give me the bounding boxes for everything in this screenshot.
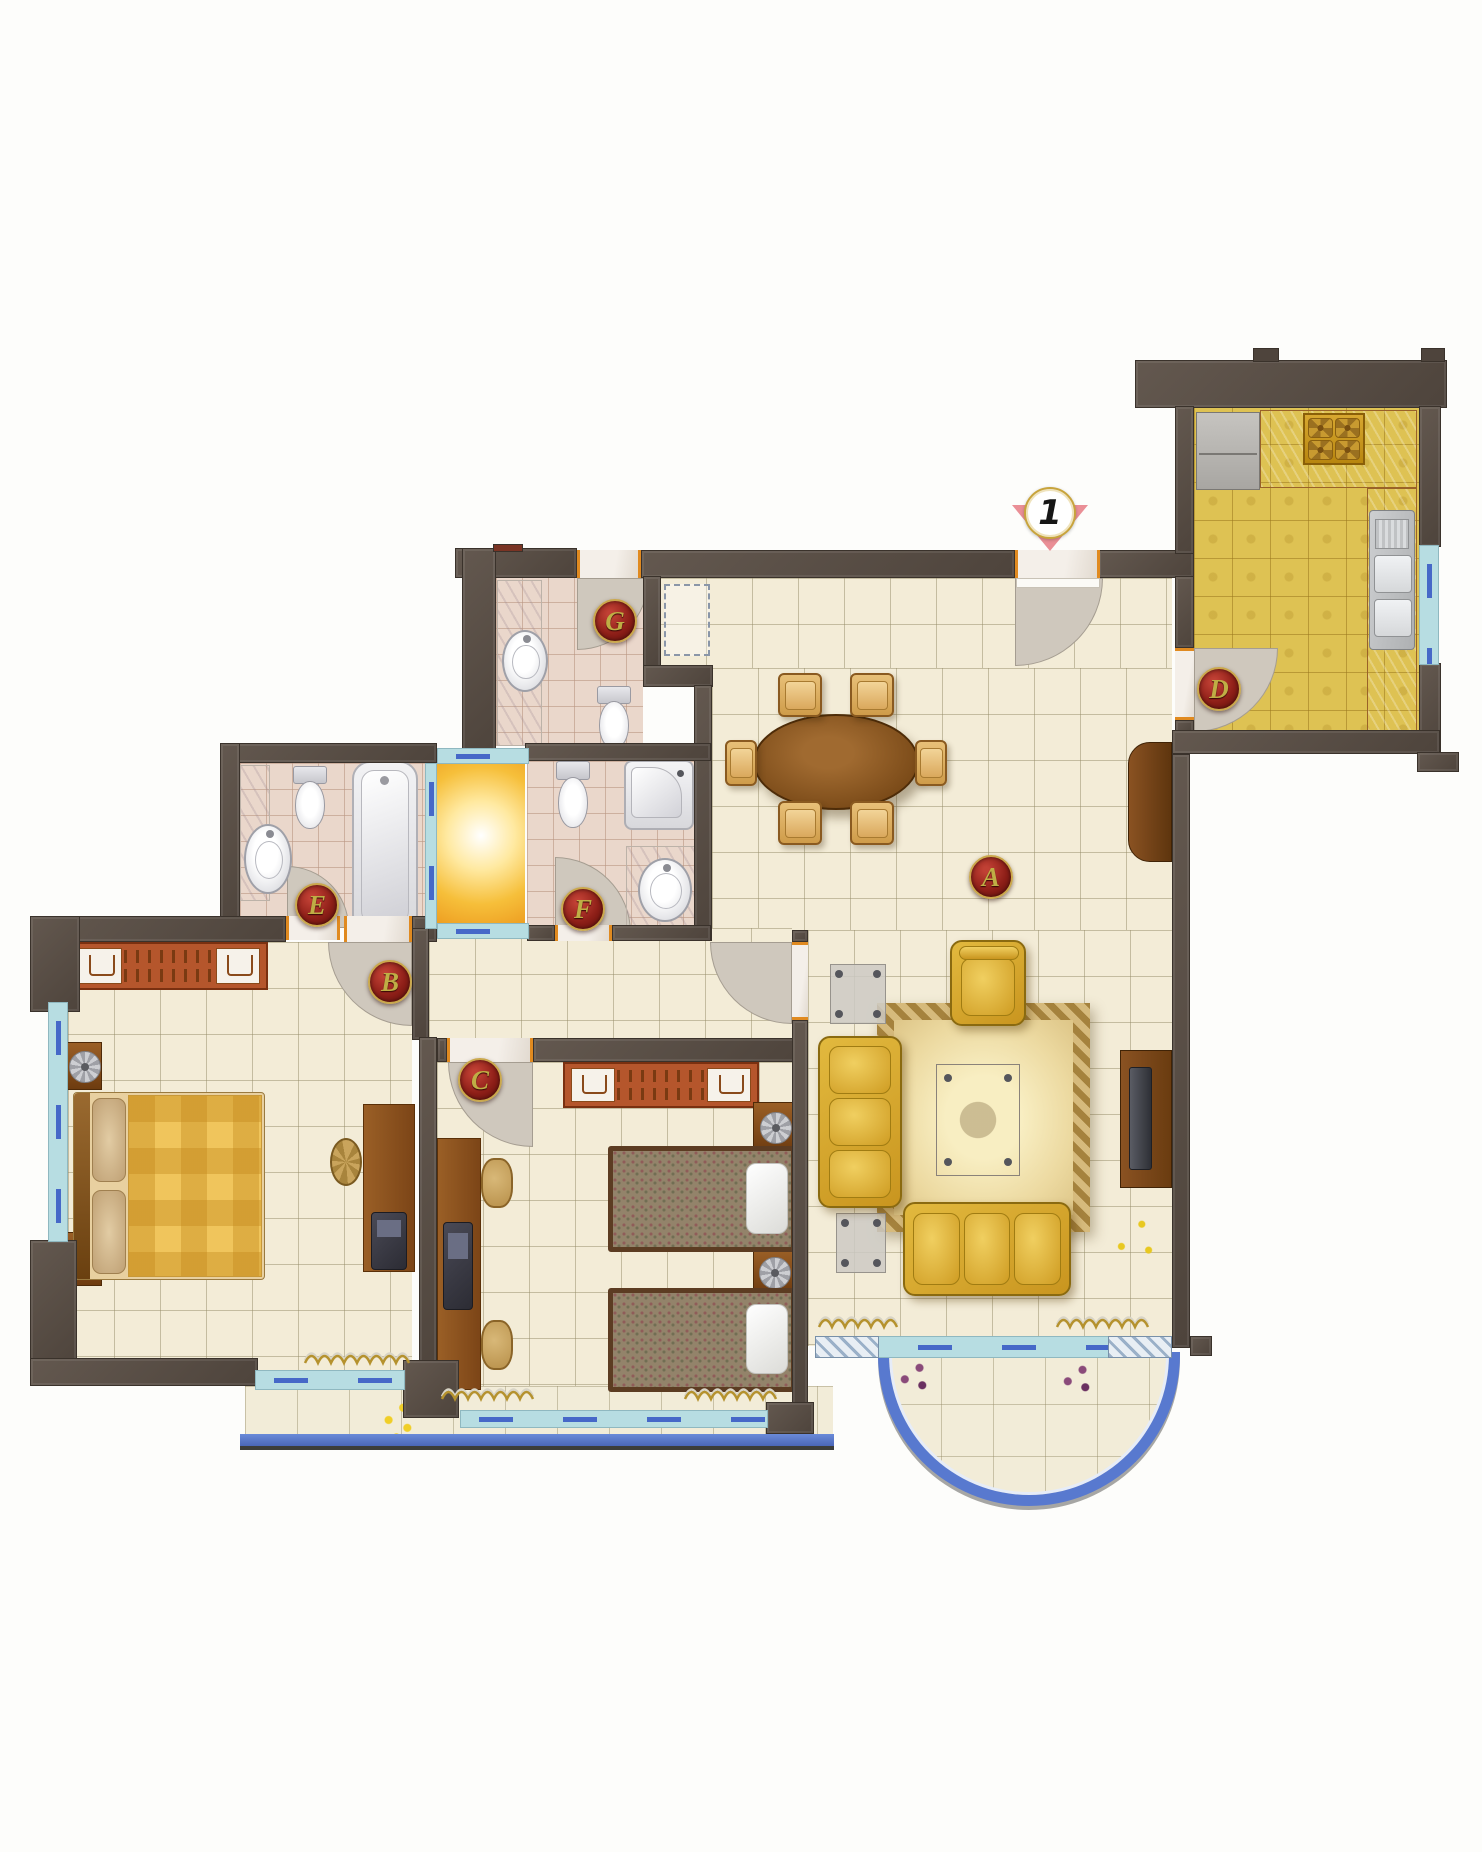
kitchen-sink — [1369, 510, 1415, 650]
bedroom2-chair-bottom — [481, 1320, 513, 1370]
foyer-closet-outline — [664, 584, 710, 656]
bath-g-basin — [502, 630, 548, 692]
wall-9 — [220, 743, 437, 763]
bedroom-master-balcony-window — [255, 1370, 405, 1390]
bedroom2-bed-top — [608, 1146, 796, 1252]
dining-chair-3 — [778, 801, 822, 845]
label-bath-e-E: E — [295, 883, 339, 927]
wall-6 — [643, 665, 713, 687]
living-sofa-left — [818, 1036, 902, 1208]
kitchen-wall-stub-1 — [1253, 348, 1279, 362]
living-window-sill-right — [1108, 1336, 1172, 1358]
wall-33 — [1172, 730, 1440, 754]
label-kitchen-D: D — [1197, 667, 1241, 711]
roof-cap-red — [493, 544, 523, 552]
living-armchair — [950, 940, 1026, 1026]
wall-16 — [412, 928, 429, 1040]
wall-24 — [30, 1358, 258, 1386]
bath-f-basin — [638, 858, 692, 922]
label-bedroom-master-B: B — [368, 960, 412, 1004]
living-sofa-front — [903, 1202, 1071, 1296]
label-bath-g-G: G — [593, 599, 637, 643]
dining-sideboard — [1128, 742, 1172, 862]
living-side-table-top — [830, 964, 886, 1024]
wall-20 — [792, 930, 808, 942]
bedroom2-desk-items — [443, 1222, 473, 1310]
bedroom-2-threshold — [447, 1038, 533, 1062]
wall-36 — [1190, 1336, 1212, 1356]
living-side-table-bottom — [836, 1213, 886, 1273]
bath-e-basin — [244, 824, 292, 894]
entrance-marker: 1 — [1024, 487, 1076, 539]
wall-34 — [1417, 752, 1459, 772]
bedroom2-nightstand-top — [753, 1102, 797, 1152]
lightwell-window-bottom — [437, 923, 529, 939]
kitchen-fridge — [1196, 412, 1260, 490]
bedroom2-wardrobe — [563, 1062, 759, 1108]
wall-12 — [527, 925, 555, 941]
kitchen-wall-stub-2 — [1421, 348, 1445, 362]
bedroom-master-side-window — [48, 1002, 68, 1242]
wall-10 — [220, 743, 240, 939]
entrance-marker-number: 1 — [1038, 493, 1062, 533]
label-bedroom-2-C: C — [458, 1058, 502, 1102]
bedroom-2-balcony-window — [460, 1410, 768, 1428]
plant-purple-right — [1054, 1356, 1100, 1402]
label-bath-f-F: F — [561, 887, 605, 931]
dining-chair-2 — [850, 673, 894, 717]
wall-7 — [694, 685, 712, 941]
master-desk-chair — [371, 1212, 407, 1270]
entrance-door-leaf — [1016, 578, 1100, 588]
wall-4 — [462, 548, 496, 754]
master-bed — [73, 1092, 265, 1280]
dining-chair-5 — [725, 740, 757, 786]
dining-chair-4 — [850, 801, 894, 845]
master-desk-stool — [330, 1138, 362, 1186]
curtain-bedroom2-left — [440, 1388, 540, 1404]
wall-13 — [612, 925, 711, 941]
curtain-master — [303, 1352, 411, 1368]
curtain-bedroom2-right — [683, 1388, 790, 1404]
floor-plan: 1 ABCDEFG — [0, 0, 1482, 1852]
lightwell-window-top — [437, 748, 529, 764]
curtain-living-right — [1055, 1316, 1162, 1332]
wall-23 — [30, 1240, 77, 1368]
curtain-living-left — [817, 1316, 899, 1332]
living-coffee-table — [936, 1064, 1020, 1176]
plant-purple-left — [891, 1354, 937, 1400]
entrance-threshold — [1015, 550, 1100, 578]
dining-chair-6 — [915, 740, 947, 786]
living-tv-cabinet — [1120, 1050, 1172, 1188]
wall-27 — [1135, 360, 1447, 408]
wall-3 — [1098, 550, 1194, 578]
dining-chair-1 — [778, 673, 822, 717]
bedroom2-chair-top — [481, 1158, 513, 1208]
balcony-left-edge — [240, 1434, 834, 1450]
wall-8 — [525, 743, 711, 761]
wall-2 — [641, 550, 1015, 578]
bedroom-master-threshold — [344, 916, 412, 942]
wall-18 — [437, 1038, 447, 1062]
bedroom2-bed-bottom — [608, 1288, 796, 1392]
kitchen-threshold — [1175, 648, 1194, 720]
label-living-dining-A: A — [969, 855, 1013, 899]
kitchen-window — [1419, 545, 1439, 665]
bath-f-toilet — [553, 761, 591, 827]
wall-29 — [1175, 576, 1194, 648]
bath-g-threshold — [577, 550, 641, 578]
wall-28 — [1175, 406, 1194, 554]
master-nightstand-top — [66, 1042, 102, 1090]
wall-19 — [533, 1038, 802, 1062]
living-window-sill-left — [815, 1336, 879, 1358]
wall-22 — [30, 916, 80, 1012]
living-hall-threshold — [792, 942, 808, 1020]
bath-f-shower — [624, 760, 694, 830]
dining-table — [753, 714, 919, 810]
plant-green — [1101, 1202, 1169, 1276]
kitchen-stove — [1303, 413, 1365, 465]
wall-21 — [792, 1020, 808, 1434]
bath-g-toilet — [594, 686, 632, 748]
bath-e-tub — [352, 761, 418, 933]
wall-5 — [643, 576, 661, 671]
wall-31 — [1419, 406, 1441, 547]
wall-26 — [766, 1402, 814, 1434]
lightwell-window-left — [425, 763, 437, 929]
lightwell — [437, 764, 525, 923]
wall-35 — [1172, 754, 1190, 1348]
master-wardrobe — [70, 942, 268, 990]
wall-17 — [419, 1037, 437, 1394]
bath-e-toilet — [290, 766, 328, 828]
